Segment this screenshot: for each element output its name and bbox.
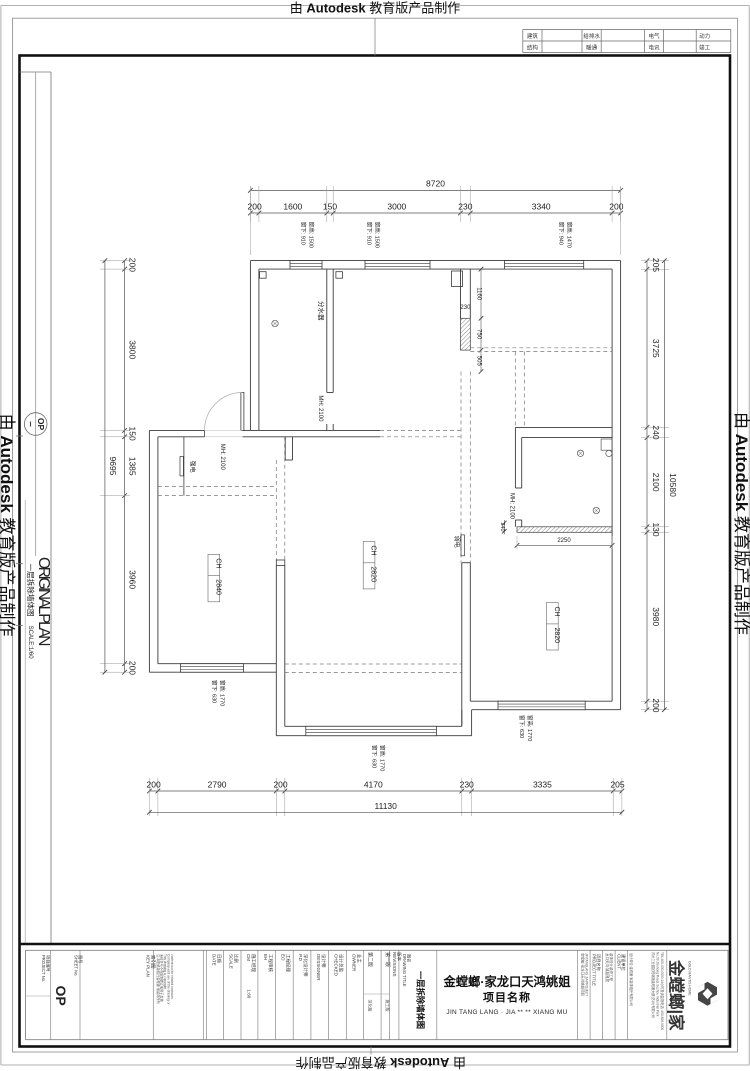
svg-text:窗高: 1770: 窗高: 1770	[379, 745, 387, 771]
svg-text:OP: OP	[53, 986, 69, 1006]
svg-text:Company and use of the drawing: Company and use of the drawing or	[167, 954, 171, 1005]
svg-text:200: 200	[248, 202, 262, 212]
svg-text:content not for related contra: content not for related contracts	[170, 954, 174, 999]
svg-text:OWNER: OWNER	[351, 954, 356, 972]
svg-text:窗高: 1770: 窗高: 1770	[219, 680, 227, 706]
svg-text:3000: 3000	[387, 202, 406, 212]
svg-text:CLIENT: CLIENT	[617, 954, 622, 969]
svg-text:2100: 2100	[651, 473, 661, 492]
svg-text:150: 150	[128, 427, 138, 441]
svg-text:MH: 2100: MH: 2100	[509, 493, 515, 520]
svg-text:金螳螂·家龙口天鸿姚姐: 金螳螂·家龙口天鸿姚姐	[442, 974, 571, 989]
svg-text:2840: 2840	[214, 579, 221, 595]
svg-text:200: 200	[651, 698, 661, 712]
svg-text:窗高: 1500: 窗高: 1500	[374, 222, 382, 248]
svg-text:施工版: 施工版	[385, 1000, 391, 1012]
svg-text:230: 230	[458, 202, 472, 212]
svg-text:3960: 3960	[128, 570, 138, 589]
svg-text:暖通: 暖通	[586, 44, 598, 52]
svg-text:KEY PLAN: KEY PLAN	[146, 955, 151, 977]
svg-text:窗高: 1470: 窗高: 1470	[566, 222, 574, 248]
svg-text:EO: EO	[281, 954, 286, 961]
svg-text:GOLD MANTIS HOME: GOLD MANTIS HOME	[688, 961, 692, 996]
svg-text:2820: 2820	[370, 566, 377, 582]
svg-text:1160: 1160	[476, 287, 482, 301]
svg-text:设计总监: 设计总监	[338, 954, 345, 972]
svg-text:OP: OP	[36, 418, 46, 431]
svg-text:ORIGINAL PLAN: ORIGINAL PLAN	[35, 557, 52, 645]
svg-text:金螳螂|家: 金螳螂|家	[667, 959, 687, 1031]
svg-text:MH: 2100: MH: 2100	[317, 395, 323, 422]
svg-text:窗下: 630: 窗下: 630	[518, 715, 526, 738]
svg-text:200: 200	[273, 780, 287, 790]
svg-text:2820: 2820	[553, 628, 560, 644]
svg-text:给排水: 给排水	[583, 32, 600, 40]
svg-text:No.99 Zhuhong Road, Suzhou Ind: No.99 Zhuhong Road, Suzhou Industrial Pa…	[656, 952, 660, 1017]
svg-text:8720: 8720	[426, 179, 445, 189]
svg-text:项目名称: 项目名称	[483, 990, 531, 1004]
svg-text:1:60: 1:60	[247, 990, 252, 999]
svg-text:4170: 4170	[364, 780, 383, 790]
svg-text:深化版: 深化版	[368, 1000, 374, 1012]
svg-text:施工经理: 施工经理	[250, 954, 257, 972]
svg-text:比例: 比例	[232, 954, 239, 963]
svg-text:CH: CH	[553, 607, 560, 617]
svg-text:电讯: 电讯	[648, 44, 660, 52]
svg-text:150: 150	[323, 202, 337, 212]
svg-text:240: 240	[651, 425, 661, 439]
svg-text:EH: EH	[263, 954, 268, 960]
svg-text:工程审核: 工程审核	[267, 954, 274, 972]
svg-text:竣工: 竣工	[699, 44, 711, 52]
svg-text:3800: 3800	[128, 340, 138, 359]
svg-text:窗高: 1770: 窗高: 1770	[526, 715, 534, 741]
svg-text:3980: 3980	[651, 607, 661, 626]
svg-text:DRAWING TITLE: DRAWING TITLE	[402, 954, 407, 987]
svg-text:窗下: 910: 窗下: 910	[365, 222, 373, 245]
svg-text:3725: 3725	[651, 339, 661, 358]
svg-text:230: 230	[460, 305, 471, 311]
svg-text:窗下: 910: 窗下: 910	[299, 222, 307, 245]
svg-text:深化设计师: 深化设计师	[302, 954, 309, 977]
svg-text:由 Autodesk 教育版产品制作: 由 Autodesk 教育版产品制作	[290, 1, 460, 16]
svg-text:505: 505	[476, 356, 482, 367]
svg-text:工程经理: 工程经理	[285, 954, 292, 972]
svg-text:苏州工业园区旺墩路金螳螂大厦(苏州)有限公司: 苏州工业园区旺墩路金螳螂大厦(苏州)有限公司	[651, 952, 656, 1018]
svg-text:3335: 3335	[533, 780, 552, 790]
svg-text:版本: 版本	[395, 952, 402, 961]
svg-text:CHECKED: CHECKED	[334, 954, 339, 977]
svg-text:建筑: 建筑	[527, 32, 539, 40]
svg-text:项目名称: 项目名称	[595, 954, 602, 971]
svg-text:P.D: P.D	[298, 954, 303, 962]
svg-text:200: 200	[609, 202, 623, 212]
svg-text:强电: 强电	[188, 461, 196, 473]
svg-text:一层拆除墙体图: 一层拆除墙体图	[26, 564, 36, 617]
svg-text:PROJECT No.: PROJECT No.	[41, 955, 46, 982]
svg-text:由 Autodesk 教育版产品制作: 由 Autodesk 教育版产品制作	[0, 414, 16, 637]
svg-text:205: 205	[610, 780, 624, 790]
svg-text:MH: 2100: MH: 2100	[219, 444, 225, 471]
svg-text:This drawing is copyright: This drawing is copyright	[163, 954, 167, 989]
svg-text:200: 200	[128, 661, 138, 675]
svg-text:SCALE: SCALE	[228, 954, 233, 969]
svg-text:一层拆除墙体图: 一层拆除墙体图	[416, 971, 426, 1029]
svg-text:750: 750	[476, 329, 482, 340]
svg-text:200: 200	[147, 780, 161, 790]
svg-text:JIN TANG LANG · JIA ** ** XIAN: JIN TANG LANG · JIA ** ** XIANG MU	[446, 1009, 567, 1016]
svg-text:第二版: 第二版	[367, 952, 374, 967]
svg-text:CH: CH	[370, 545, 377, 555]
svg-text:由 Autodesk 教育版产品制作: 由 Autodesk 教育版产品制作	[296, 1055, 466, 1070]
svg-text:1600: 1600	[283, 202, 302, 212]
svg-text:CH: CH	[214, 558, 221, 568]
svg-text:REVISIONS: REVISIONS	[392, 952, 397, 977]
svg-text:TEL:400-000-0000 24小时投诉监督电话:: TEL:400-000-0000 24小时投诉监督电话: 400-828-000…	[660, 952, 665, 1030]
svg-text:窗高: 1500: 窗高: 1500	[308, 222, 316, 248]
svg-text:3340: 3340	[532, 202, 551, 212]
svg-text:由 Autodesk 教育版产品制作: 由 Autodesk 教育版产品制作	[732, 412, 750, 635]
svg-text:11130: 11130	[375, 801, 398, 811]
svg-text:10580: 10580	[668, 473, 678, 497]
svg-text:SHEET No.: SHEET No.	[74, 955, 79, 977]
svg-text:230: 230	[460, 780, 474, 790]
svg-text:分水器: 分水器	[317, 301, 326, 321]
svg-text:CM: CM	[246, 954, 251, 961]
svg-text:装饰设计装修工程: 装饰设计装修工程	[609, 953, 614, 981]
svg-text:电气: 电气	[648, 32, 660, 40]
svg-text:窗下: 630: 窗下: 630	[210, 680, 218, 703]
svg-text:240: 240	[499, 522, 505, 531]
svg-text:PROJECT TITLE: PROJECT TITLE	[592, 954, 597, 986]
svg-text:窗下: 630: 窗下: 630	[370, 745, 378, 768]
svg-text:弱电: 弱电	[453, 536, 461, 548]
svg-text:第一版: 第一版	[384, 952, 391, 967]
svg-text:项目编号: 项目编号	[45, 955, 52, 972]
svg-text:设计单位:金螳螂·家装饰股份有限公司: 设计单位:金螳螂·家装饰股份有限公司	[629, 953, 634, 1006]
svg-text:SCALE:1/60: SCALE:1/60	[27, 626, 33, 660]
svg-text:130: 130	[651, 522, 661, 536]
svg-text:动力: 动力	[699, 32, 710, 40]
svg-text:图名: 图名	[406, 954, 413, 962]
svg-text:建设单位: 建设单位	[620, 954, 627, 971]
svg-text:9695: 9695	[108, 457, 118, 476]
svg-text:业主: 业主	[356, 954, 362, 963]
svg-text:200: 200	[128, 258, 138, 272]
svg-text:205: 205	[651, 258, 661, 272]
svg-text:2250: 2250	[557, 538, 571, 544]
svg-text:2790: 2790	[208, 780, 227, 790]
svg-text:JINTANGLANG JIA PROJECT: JINTANGLANG JIA PROJECT	[585, 953, 589, 996]
svg-text:DATE: DATE	[212, 954, 217, 966]
svg-text:DESSIGNER: DESSIGNER	[316, 954, 321, 981]
svg-text:1385: 1385	[128, 457, 138, 476]
svg-text:窗下: 940: 窗下: 940	[557, 222, 565, 245]
svg-text:结构: 结构	[527, 44, 539, 52]
svg-text:设计师: 设计师	[320, 954, 327, 968]
svg-text:索引图: 索引图	[150, 955, 157, 969]
